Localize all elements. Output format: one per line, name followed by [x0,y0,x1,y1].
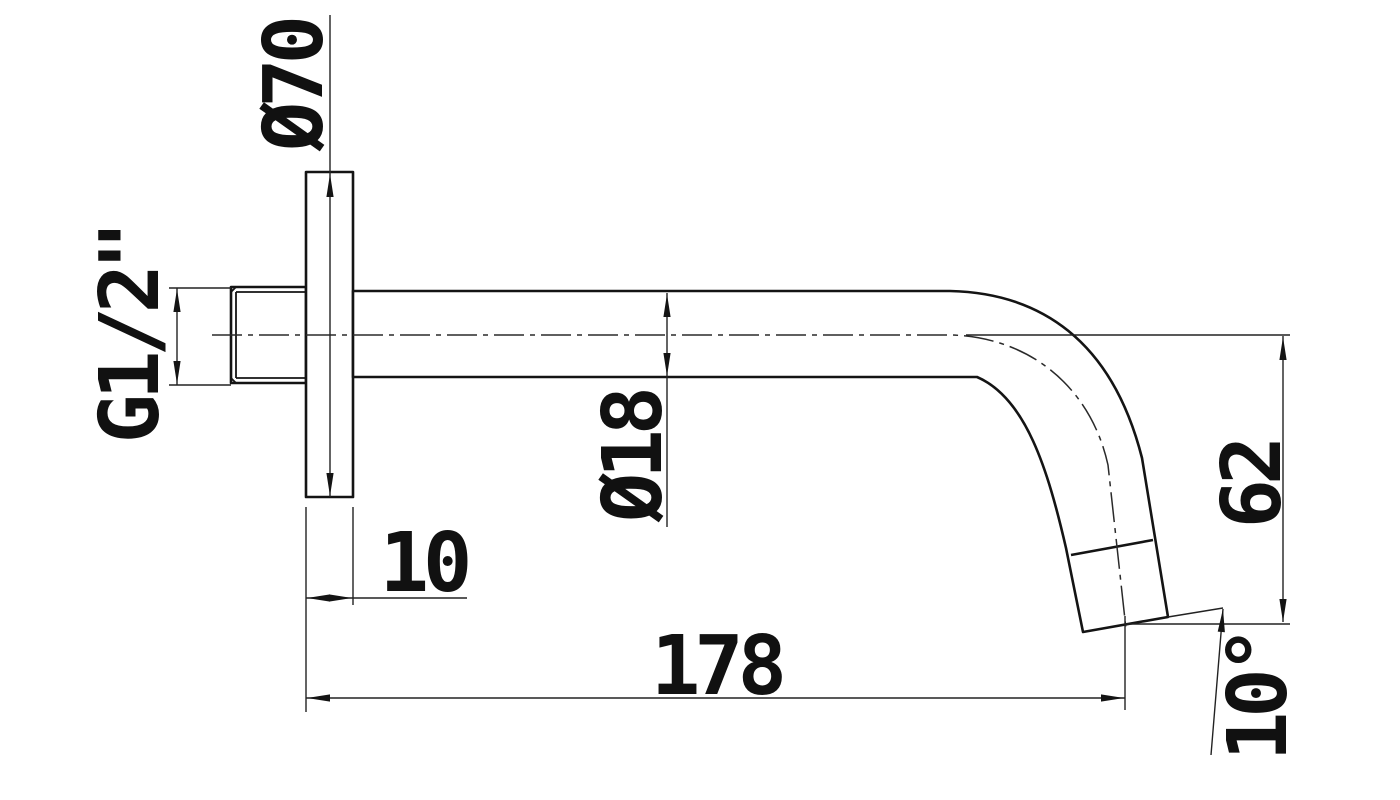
part-outline-group [231,172,1168,632]
dim-label-thread-size: G1/2" [83,227,178,444]
arrowhead [1101,694,1124,701]
dim-label-outlet-angle: 10° [1211,631,1306,761]
drawing-sheet: Ø70 G1/2" Ø18 10 178 62 [0,0,1400,800]
arrowhead [329,594,352,601]
dim-label-flange-thickness: 10 [380,516,468,611]
arrowhead [307,694,330,701]
dim-label-projection-length: 178 [651,619,783,714]
technical-drawing-canvas: Ø70 G1/2" Ø18 10 178 62 [0,0,1400,800]
arrowhead [307,594,330,601]
arrowhead [1218,609,1225,632]
dim-label-drop-height: 62 [1205,442,1300,529]
dimension-group: Ø70 G1/2" Ø18 10 178 62 [83,15,1306,761]
arrowhead [1279,599,1286,622]
arrowhead [1279,337,1286,360]
dim-label-flange-diameter: Ø70 [247,19,342,152]
spout-tube [353,291,1168,632]
dim-label-tube-diameter: Ø18 [586,390,681,523]
